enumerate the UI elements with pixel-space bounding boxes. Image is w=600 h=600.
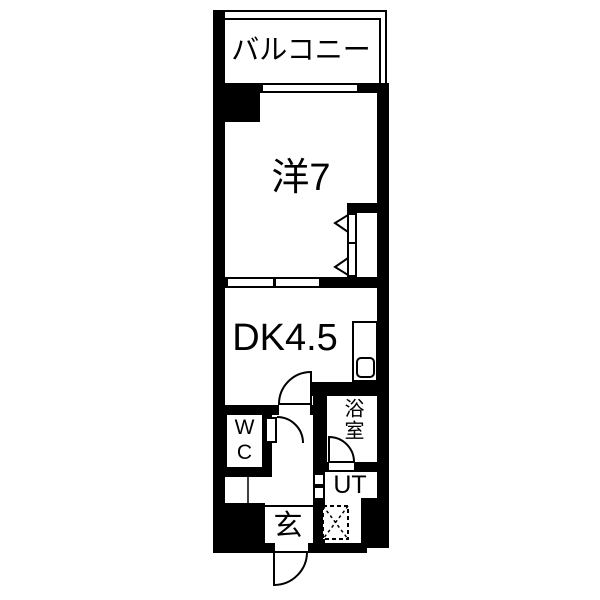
dk-door-swing-icon [279, 372, 311, 404]
dining-kitchen-label: DK4.5 [225, 316, 345, 360]
balcony-label: バルコニー [221, 18, 381, 81]
entrance-door-swing-icon [274, 552, 307, 585]
floorplan-canvas: バルコニー 洋7 DK4.5 WC 浴室 UT 玄 [0, 0, 600, 600]
entrance-label: 玄 [263, 508, 313, 544]
wc-door-swing-icon [277, 417, 303, 443]
closet-door-arrow-icon [335, 258, 348, 275]
closet-door-arrow-icon [335, 215, 348, 232]
western-room-label: 洋7 [225, 156, 377, 200]
bathroom-label: 浴室 [327, 394, 377, 446]
wc-label: WC [227, 413, 262, 469]
utility-label: UT [325, 472, 375, 498]
